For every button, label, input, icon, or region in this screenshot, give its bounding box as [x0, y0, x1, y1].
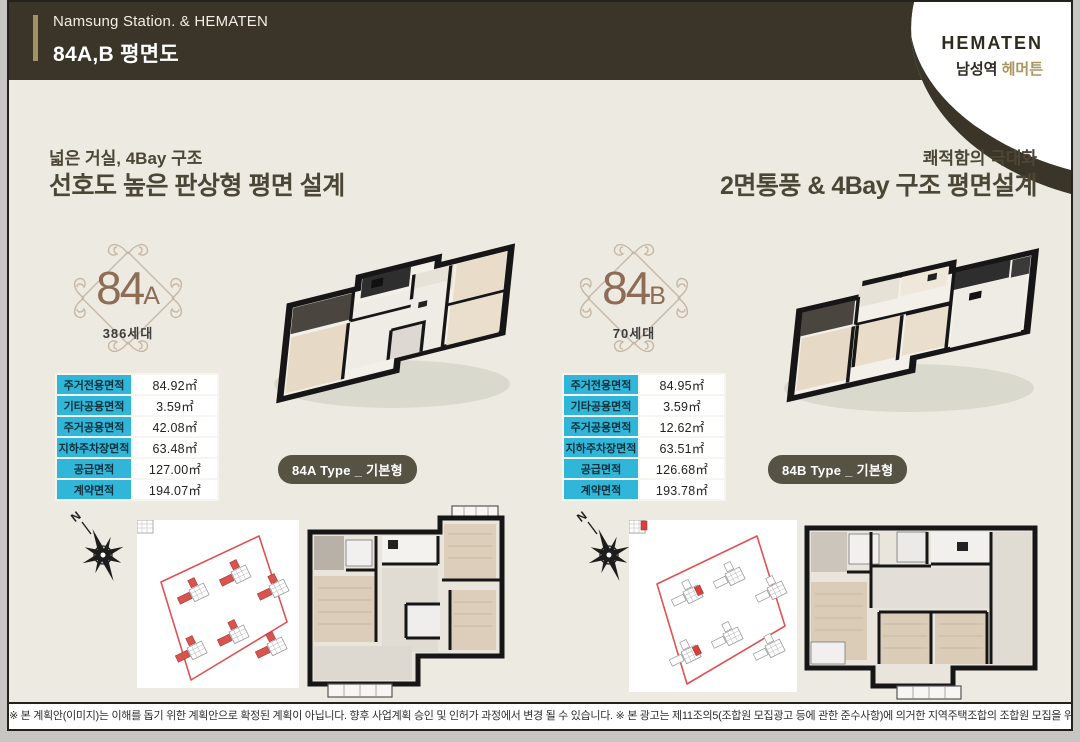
site-plan-84b — [629, 520, 797, 692]
compass-rose-icon: N — [69, 507, 133, 587]
table-row: 공급면적127.00㎡ — [57, 459, 217, 478]
type-label-84a: 84A Type _ 기본형 — [278, 455, 417, 484]
table-row: 공급면적126.68㎡ — [564, 459, 724, 478]
unit-badge-84a: 84A 386세대 — [67, 237, 189, 359]
floor-plan-3d-84a — [257, 232, 522, 420]
floor-plan-2d-84a — [302, 504, 520, 700]
area-table-84b: 주거전용면적84.95㎡ 기타공용면적3.59㎡ 주거공용면적12.62㎡ 지하… — [562, 373, 726, 501]
unit-code-84b: 84B — [573, 261, 695, 315]
site-plan-84a — [137, 520, 299, 688]
main-headline-84a: 선호도 높은 판상형 평면 설계 — [49, 170, 345, 203]
gold-accent-bar — [33, 15, 38, 61]
brochure-page: Namsung Station. & HEMATEN 84A,B 평면도 HEM… — [7, 0, 1073, 731]
brand-logo: HEMATEN 남성역 헤머튼 — [941, 30, 1043, 81]
disclaimer-text: ※ 본 계획안(이미지)는 이해를 돕기 위한 계획안으로 확정된 계획이 아닙… — [9, 704, 1071, 728]
table-row: 계약면적193.78㎡ — [564, 480, 724, 499]
tagline-84b: 쾌적함의 극대화 — [720, 148, 1037, 170]
floor-plan-2d-84b — [801, 502, 1047, 702]
households-84a: 386세대 — [67, 323, 189, 342]
table-row: 기타공용면적3.59㎡ — [564, 396, 724, 415]
floor-plan-3d-84b — [761, 240, 1051, 422]
table-row: 주거전용면적84.95㎡ — [564, 375, 724, 394]
unit-badge-84b: 84B 70세대 — [573, 237, 695, 359]
table-row: 계약면적194.07㎡ — [57, 480, 217, 499]
logo-name-text: 남성역 헤머튼 — [941, 58, 1043, 81]
main-headline-84b: 2면통풍 & 4Bay 구조 평면설계 — [720, 170, 1037, 203]
page-title: 84A,B 평면도 — [53, 38, 179, 68]
headline-84b: 쾌적함의 극대화 2면통풍 & 4Bay 구조 평면설계 — [720, 148, 1037, 203]
logo-brand-text: HEMATEN — [941, 30, 1043, 58]
north-label: N — [575, 508, 590, 524]
disclaimer-bar: ※ 본 계획안(이미지)는 이해를 돕기 위한 계획안으로 확정된 계획이 아닙… — [9, 702, 1071, 729]
households-84b: 70세대 — [573, 323, 695, 342]
table-row: 주거공용면적42.08㎡ — [57, 417, 217, 436]
type-label-84b: 84B Type _ 기본형 — [768, 455, 907, 484]
table-row: 기타공용면적3.59㎡ — [57, 396, 217, 415]
header-subtitle: Namsung Station. & HEMATEN — [53, 13, 268, 30]
table-row: 지하주차장면적63.51㎡ — [564, 438, 724, 457]
north-label: N — [69, 508, 84, 524]
table-row: 지하주차장면적63.48㎡ — [57, 438, 217, 457]
table-row: 주거전용면적84.92㎡ — [57, 375, 217, 394]
table-row: 주거공용면적12.62㎡ — [564, 417, 724, 436]
area-table-84a: 주거전용면적84.92㎡ 기타공용면적3.59㎡ 주거공용면적42.08㎡ 지하… — [55, 373, 219, 501]
unit-code-84a: 84A — [67, 261, 189, 315]
tagline-84a: 넓은 거실, 4Bay 구조 — [49, 148, 345, 170]
headline-84a: 넓은 거실, 4Bay 구조 선호도 높은 판상형 평면 설계 — [49, 148, 345, 203]
